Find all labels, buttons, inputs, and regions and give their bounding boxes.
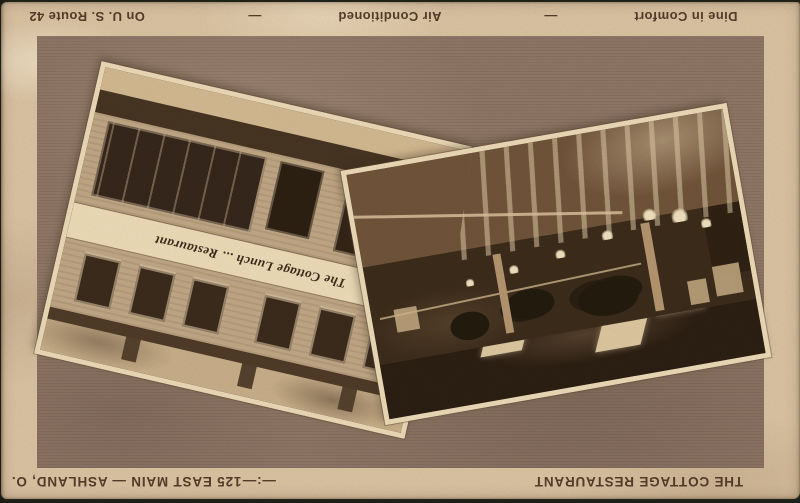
caption-dash-right: —: [544, 9, 557, 24]
table-lamp: [465, 278, 474, 287]
table-lamp: [670, 207, 688, 224]
table-lamp: [601, 229, 614, 241]
caption-dash-left: —: [248, 9, 261, 24]
caption-dine-in-comfort: Dine in Comfort: [634, 9, 738, 24]
wall-mirror: [712, 262, 743, 296]
caption-title: THE COTTAGE RESTAURANT: [534, 474, 743, 489]
caption-route-42: On U. S. Route 42: [29, 9, 145, 24]
table-lamp: [642, 207, 657, 221]
table-lamp: [701, 217, 713, 229]
table-lamp: [555, 248, 566, 259]
postcard-front: On U. S. Route 42 — Air Conditioned — Di…: [1, 2, 800, 499]
wall-mirror: [687, 278, 710, 306]
caption-address: 125 EAST MAIN — ASHLAND, O.: [11, 474, 241, 489]
caption-air-conditioned: Air Conditioned: [338, 9, 442, 24]
table-lamp: [508, 264, 518, 274]
postcard-scan: On U. S. Route 42 — Air Conditioned — Di…: [0, 0, 800, 503]
caption-separator: —:—: [242, 474, 276, 489]
